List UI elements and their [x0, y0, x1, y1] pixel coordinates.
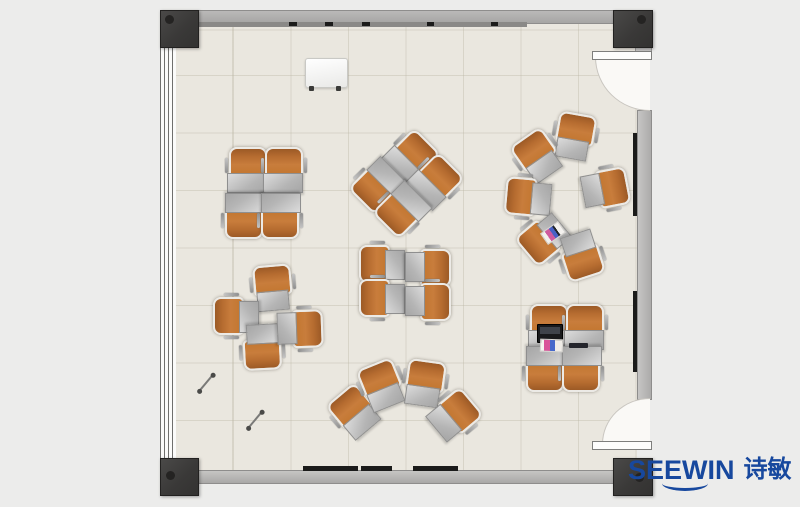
student-desk: [227, 173, 267, 193]
desk-chair-unit: [262, 193, 302, 239]
structural-column: [160, 458, 199, 496]
wall-board: [413, 466, 458, 471]
student-desk: [225, 193, 265, 213]
student-desk: [405, 252, 425, 282]
desk-chair-unit: [405, 280, 451, 320]
student-desk: [405, 286, 425, 316]
desk-chair-unit: [276, 306, 323, 348]
student-desk: [276, 312, 297, 345]
floor-plan-scene: SEEWIN诗敏: [0, 0, 800, 507]
book: [539, 338, 562, 352]
tablet: [569, 343, 588, 348]
structural-column: [613, 10, 653, 48]
wall-right: [637, 110, 652, 400]
wall-board: [303, 466, 358, 471]
door-leaf-top: [592, 51, 652, 60]
student-desk: [385, 284, 405, 314]
brand-name-zh: 诗敏: [744, 455, 792, 483]
wall-board: [491, 22, 498, 26]
wall-board: [633, 133, 637, 216]
whiteboard-easel: [305, 58, 348, 88]
structural-column: [160, 10, 199, 48]
brand-swoosh-icon: [662, 476, 708, 491]
desk-chair-unit: [226, 147, 266, 193]
wall-bottom: [176, 470, 639, 484]
desk-chair-unit: [359, 280, 405, 320]
brand-logo: SEEWIN诗敏: [628, 449, 792, 486]
student-desk: [562, 346, 602, 366]
desk-chair-unit: [579, 163, 632, 211]
wall-board: [361, 466, 392, 471]
wall-board: [633, 291, 637, 372]
wall-board: [427, 22, 434, 26]
desk-chair-unit: [226, 193, 266, 239]
wall-board: [289, 22, 297, 26]
wall-board: [362, 22, 370, 26]
desk-chair-unit: [527, 346, 567, 392]
student-desk: [385, 250, 405, 280]
student-desk: [246, 323, 279, 345]
wall-board: [325, 22, 333, 26]
window-wall-left: [160, 46, 176, 460]
desk-chair-unit: [563, 346, 603, 392]
desk-chair-unit: [262, 147, 302, 193]
student-desk: [263, 173, 303, 193]
student-desk: [261, 193, 301, 213]
